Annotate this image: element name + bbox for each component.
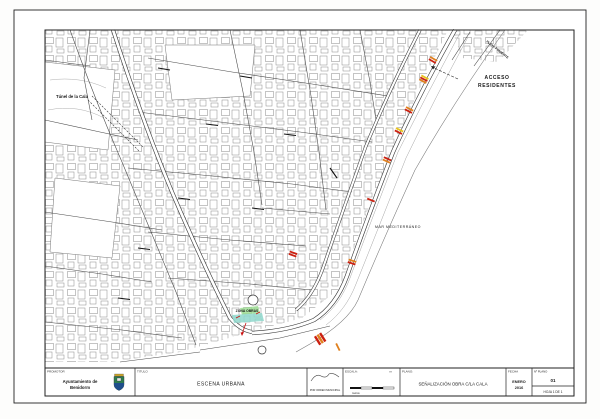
access-label-line1: ACCESO	[485, 75, 510, 81]
promotor-label: PROMOTOR	[47, 370, 65, 374]
plano-label: PLANO:	[402, 370, 413, 374]
tunnel-label: Túnel de la Cala	[56, 94, 89, 99]
fecha-value-line2: 2016	[515, 386, 523, 390]
plan-sheet-svg: ZONA OBRAS Túnel de la Cala MAR MEDITERR…	[0, 0, 600, 419]
title-block: PROMOTOR Ayuntamiento de Benidorm TITULO…	[45, 368, 574, 396]
roundabout	[248, 295, 258, 305]
fecha-label: FECHA	[508, 370, 518, 374]
signature-caption: POR ORDEN MUNICIPAL	[310, 388, 341, 392]
escala-label: ESCALA:	[345, 370, 358, 374]
num-plano-value: 01	[550, 378, 556, 383]
work-zone-label: ZONA OBRAS	[236, 309, 259, 313]
titulo-label: TITULO	[137, 370, 148, 374]
plan-sheet: ZONA OBRAS Túnel de la Cala MAR MEDITERR…	[0, 0, 600, 419]
fecha-value-line1: ENERO	[512, 380, 526, 384]
organization-name-line2: Benidorm	[70, 385, 90, 390]
organization-name-line1: Ayuntamiento de	[63, 379, 98, 384]
roundabout-south	[258, 346, 266, 354]
sheet-title: ESCENA URBANA	[197, 382, 245, 388]
scale-bar	[350, 387, 394, 389]
plano-title: SEÑALIZACIÓN OBRA C/LA CALA	[418, 382, 487, 387]
hoja-value: HOJA 1 DE 1	[544, 390, 563, 394]
access-label-line2: RESIDENTES	[478, 83, 516, 89]
benidorm-shield-icon	[114, 374, 124, 391]
sea-label: MAR MEDITERRÁNEO	[375, 225, 421, 229]
num-plano-label: Nº PLANO	[534, 370, 548, 374]
escala-sub: metros	[352, 392, 360, 395]
